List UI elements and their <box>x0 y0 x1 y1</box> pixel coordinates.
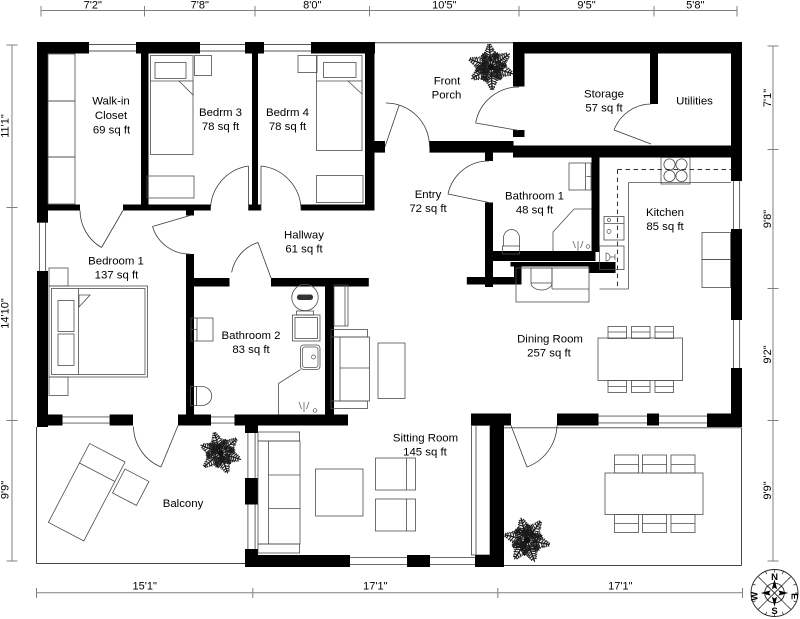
svg-text:Sitting Room: Sitting Room <box>393 433 458 445</box>
svg-text:W: W <box>750 592 761 601</box>
svg-text:8'0": 8'0" <box>303 0 321 12</box>
svg-text:Bedrm 4: Bedrm 4 <box>266 107 309 119</box>
svg-text:48 sq ft: 48 sq ft <box>516 205 554 217</box>
svg-text:7'1": 7'1" <box>762 89 774 107</box>
svg-text:78 sq ft: 78 sq ft <box>202 121 240 133</box>
svg-text:Walk-in: Walk-in <box>92 96 130 108</box>
svg-text:7'8": 7'8" <box>191 0 209 12</box>
svg-text:137 sq ft: 137 sq ft <box>95 270 140 282</box>
svg-text:Utilities: Utilities <box>676 95 713 107</box>
svg-text:15'1": 15'1" <box>133 581 157 593</box>
svg-text:Hallway: Hallway <box>284 230 324 242</box>
svg-text:83 sq ft: 83 sq ft <box>232 344 270 356</box>
svg-text:17'1": 17'1" <box>363 581 387 593</box>
svg-text:9'9": 9'9" <box>762 481 774 499</box>
svg-text:S: S <box>771 606 777 617</box>
svg-text:Balcony: Balcony <box>163 498 204 510</box>
svg-text:9'2": 9'2" <box>762 345 774 363</box>
svg-text:Porch: Porch <box>432 90 462 102</box>
svg-text:145 sq ft: 145 sq ft <box>403 447 448 459</box>
svg-text:Storage: Storage <box>584 89 624 101</box>
svg-text:17'1": 17'1" <box>608 581 632 593</box>
svg-text:E: E <box>789 593 800 599</box>
svg-text:Entry: Entry <box>415 189 442 201</box>
svg-text:10'5": 10'5" <box>432 0 456 12</box>
svg-text:14'10": 14'10" <box>0 298 12 329</box>
svg-text:69 sq ft: 69 sq ft <box>93 124 131 136</box>
svg-text:Bedroom 1: Bedroom 1 <box>88 256 144 268</box>
svg-text:Closet: Closet <box>95 110 128 122</box>
svg-text:7'2": 7'2" <box>84 0 102 12</box>
svg-text:72 sq ft: 72 sq ft <box>409 203 447 215</box>
svg-text:11'1": 11'1" <box>0 114 12 138</box>
svg-text:9'9": 9'9" <box>0 481 12 499</box>
svg-text:N: N <box>771 572 778 583</box>
svg-text:Bathroom 1: Bathroom 1 <box>505 191 564 203</box>
svg-text:78 sq ft: 78 sq ft <box>269 121 307 133</box>
svg-text:Bathroom 2: Bathroom 2 <box>222 330 281 342</box>
svg-text:85 sq ft: 85 sq ft <box>646 221 684 233</box>
svg-text:257 sq ft: 257 sq ft <box>527 348 572 360</box>
svg-text:Dining Room: Dining Room <box>517 334 583 346</box>
svg-text:9'5": 9'5" <box>577 0 595 12</box>
svg-text:Front: Front <box>434 76 461 88</box>
svg-text:Kitchen: Kitchen <box>646 207 684 219</box>
svg-text:Bedrm 3: Bedrm 3 <box>199 107 242 119</box>
svg-text:57 sq ft: 57 sq ft <box>585 103 623 115</box>
svg-text:5'8": 5'8" <box>686 0 704 12</box>
svg-text:9'8": 9'8" <box>762 210 774 228</box>
svg-text:61 sq ft: 61 sq ft <box>285 244 323 256</box>
